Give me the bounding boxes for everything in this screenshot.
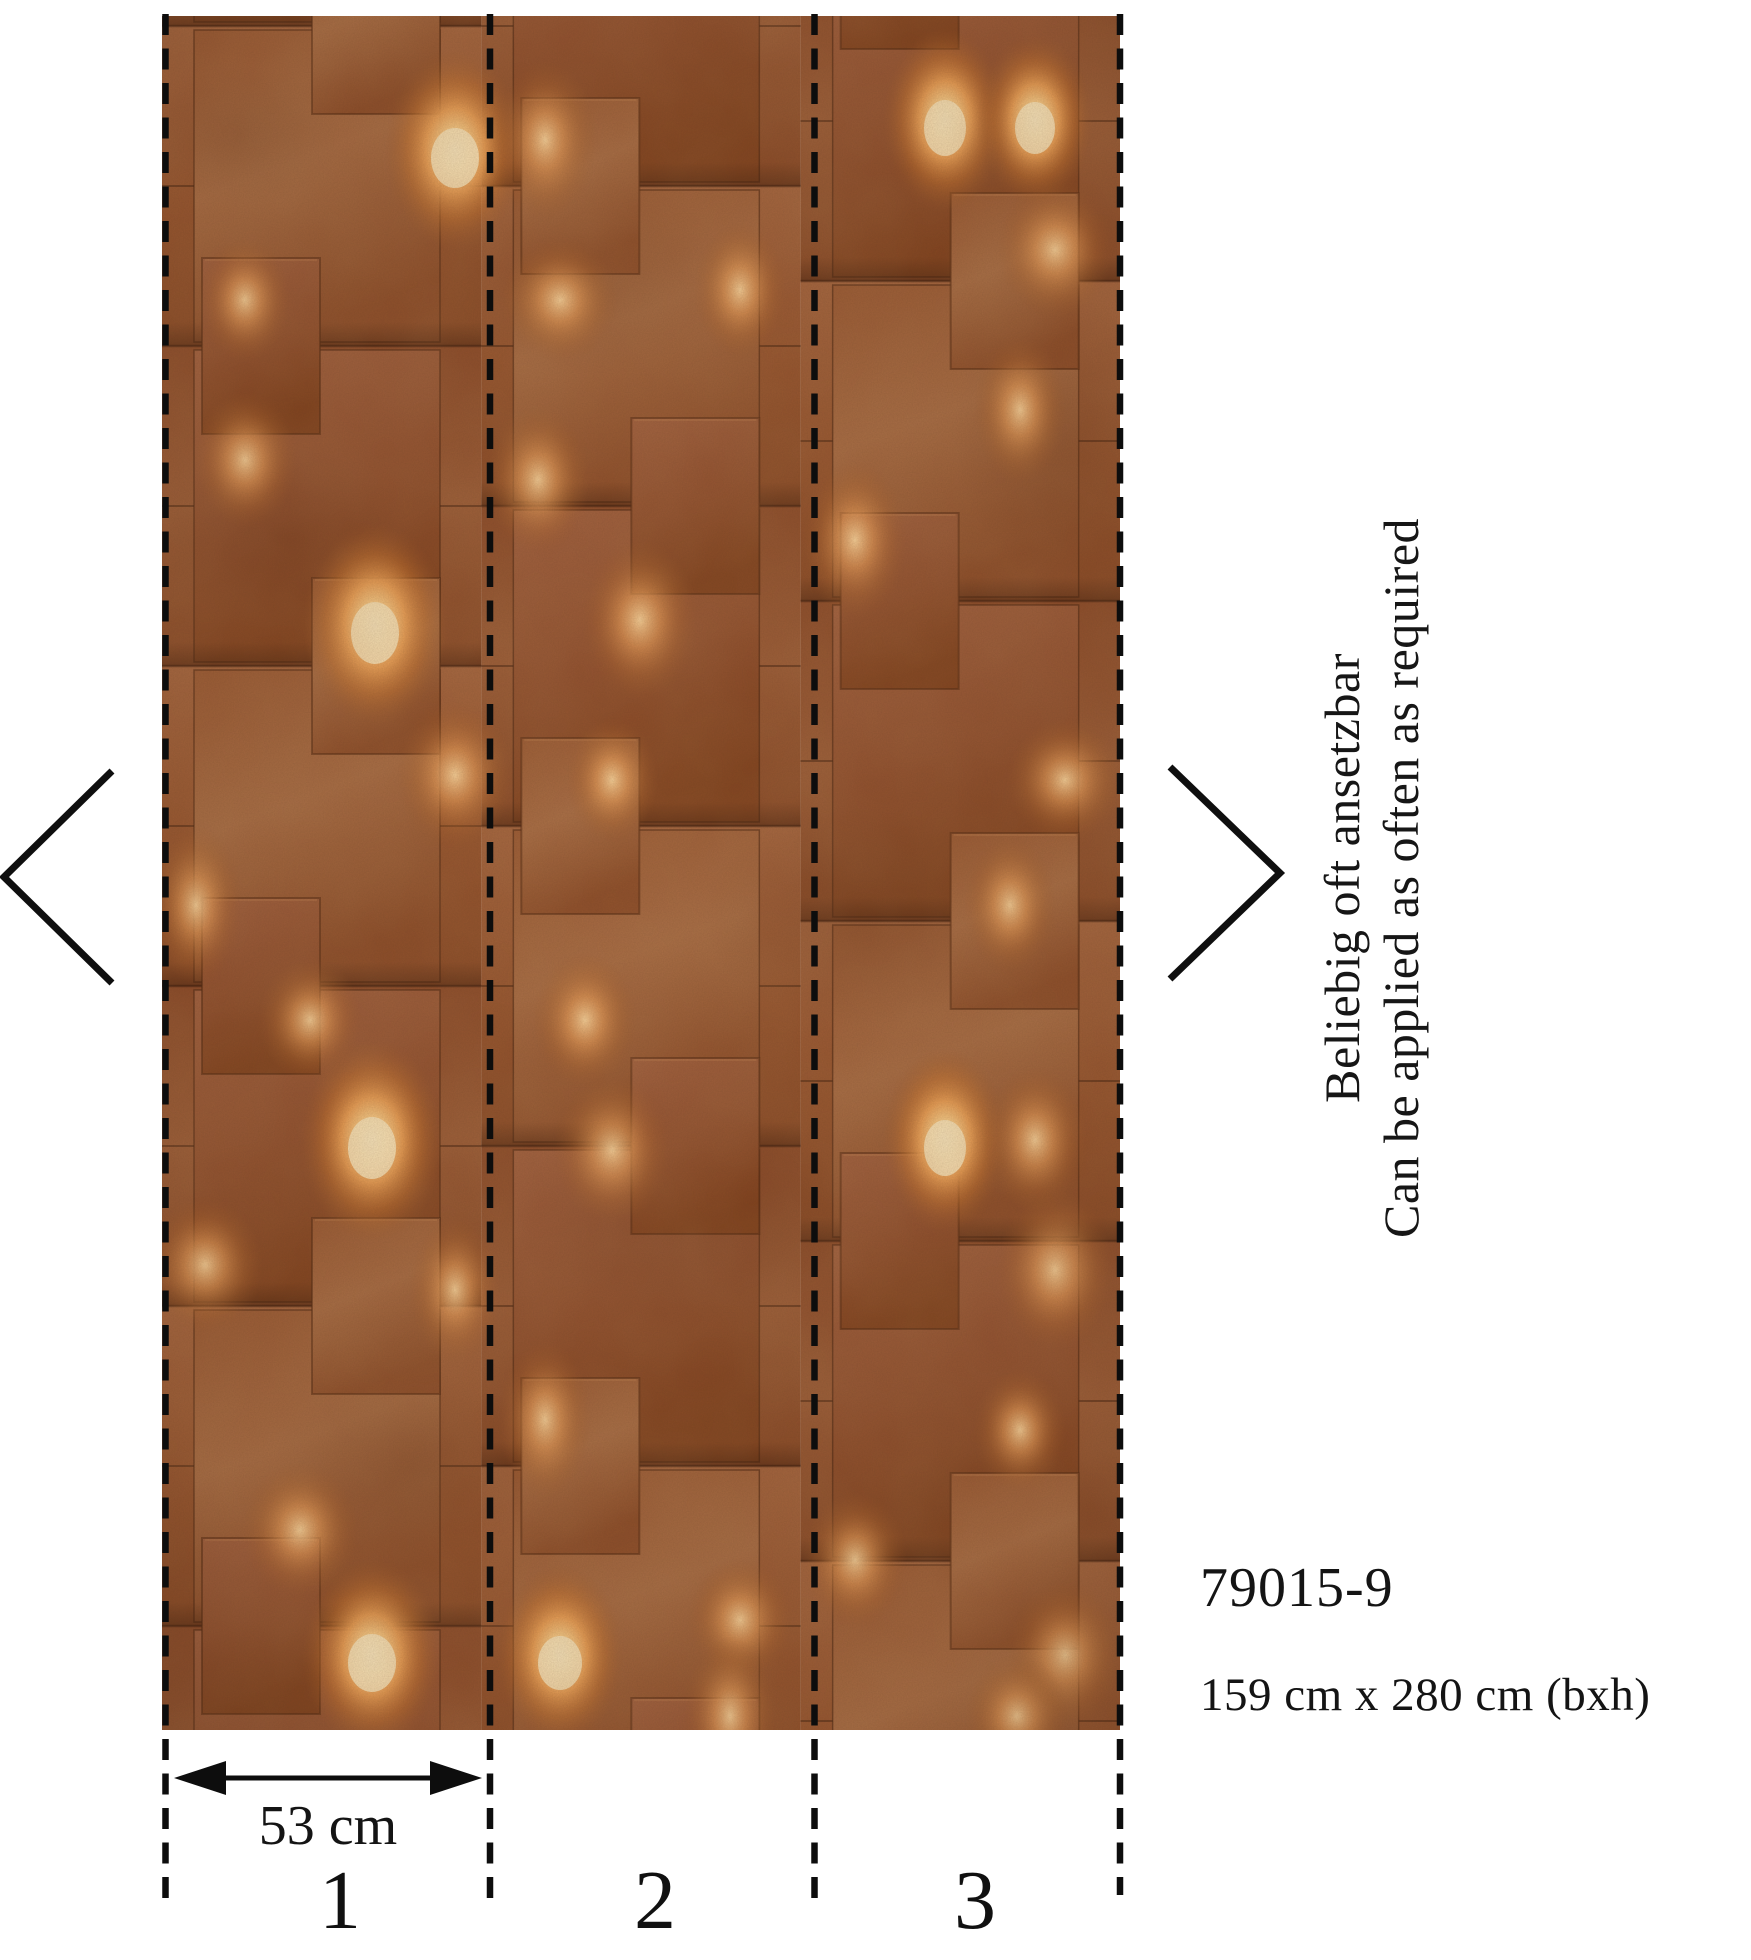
repeat-note-de: Beliebig oft ansetzbar <box>1313 518 1372 1238</box>
strip-number-2: 2 <box>590 1856 720 1946</box>
product-dimensions: 159 cm x 280 cm (bxh) <box>1200 1668 1650 1722</box>
strip-number-1: 1 <box>275 1856 405 1946</box>
product-code: 79015-9 <box>1200 1556 1394 1620</box>
strip-width-label: 53 cm <box>162 1794 494 1858</box>
arrow-left-head <box>174 1761 226 1795</box>
repeat-note: Beliebig oft ansetzbar Can be applied as… <box>1313 518 1431 1238</box>
arrow-right-head <box>430 1761 482 1795</box>
wallpaper-pattern-image <box>162 16 1120 1730</box>
strip-number-3: 3 <box>910 1856 1040 1946</box>
chevron-left-icon <box>0 766 120 992</box>
previous-button[interactable] <box>0 766 120 992</box>
repeat-note-en: Can be applied as often as required <box>1372 518 1431 1238</box>
chevron-right-icon <box>1164 762 1288 988</box>
next-button[interactable] <box>1164 762 1288 988</box>
product-preview-canvas: Beliebig oft ansetzbar Can be applied as… <box>0 0 1751 1960</box>
